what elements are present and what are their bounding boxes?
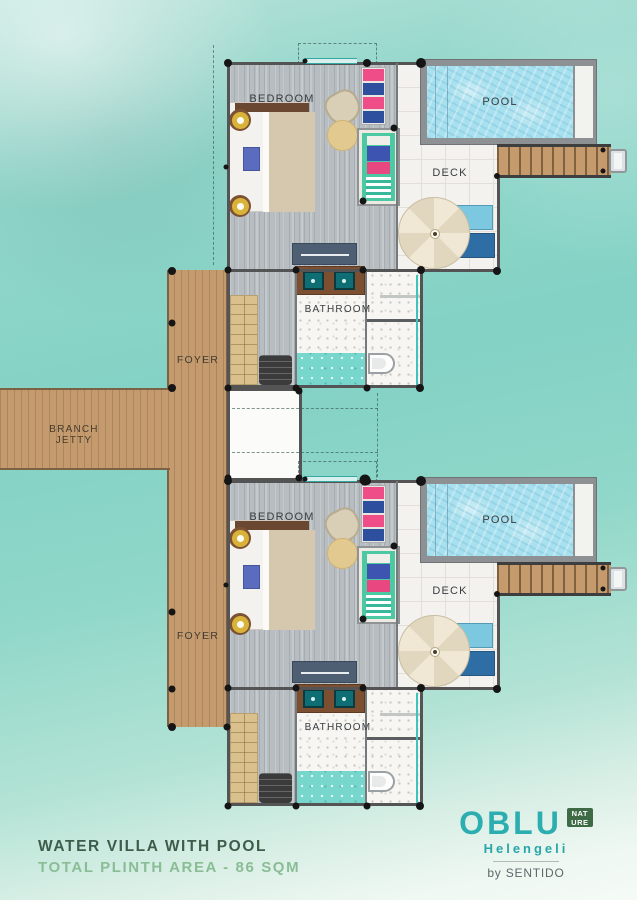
cushion [363,69,384,81]
window-strip [305,476,357,482]
pool-step-line [447,484,448,556]
daybed-towel [366,595,391,616]
pile-dot [224,724,231,731]
window-seat [361,67,386,125]
pile-dot [360,267,367,274]
deck-label: DECK [415,167,485,179]
foyer-label: FOYER [168,630,228,642]
wall-bottom [227,385,423,388]
plan-title: WATER VILLA WITH POOL [38,838,300,856]
pool-step-line [435,484,436,556]
plan-subtitle: TOTAL PLINTH AREA - 86 SQM [38,859,300,876]
bedside-lamp [232,198,249,215]
pile-dot [416,476,426,486]
pile-dot [391,543,398,550]
wall-bath-2 [365,689,367,805]
pile-dot [493,267,501,275]
pool: POOL [420,59,597,145]
bed-pillow [243,147,260,171]
nature-badge-line2: URE [567,819,593,828]
bedside-lamp [232,616,249,633]
pile-dot [224,477,232,485]
pool-side-ledge [575,66,593,138]
round-rug [327,120,358,151]
wall-bath-2 [365,271,367,387]
shower-divider [366,319,422,322]
pool-step-line [447,66,448,138]
wall-bedroom-deck [396,63,398,269]
pile-dot [296,475,303,482]
pile-dot [225,385,232,392]
pile-dot [494,591,500,597]
pile-dot [363,477,371,485]
bedside-lamp [232,112,249,129]
pile-dot [225,685,232,692]
brand-block: OBLU NAT URE Helengeli by SENTIDO [444,808,608,880]
wall-bath-right [420,271,423,388]
footer-title-block: WATER VILLA WITH POOL TOTAL PLINTH AREA … [38,838,300,876]
sink [303,271,324,290]
luggage-bench [259,355,292,385]
cushion [363,487,384,499]
daybed-pillow [367,162,390,174]
pile-dot [360,685,367,692]
wall-bath-right [420,689,423,806]
pile-dot [417,684,425,692]
daybed-pillow [367,146,390,161]
pile-dot [601,169,606,174]
pool-water: POOL [427,66,573,138]
pile-dot [168,267,176,275]
brand-property: Helengeli [444,841,608,856]
pile-dot [601,148,606,153]
bathroom-wet-area [297,353,365,385]
cushion [363,529,384,541]
bed-pillow [243,565,260,589]
cushion [363,83,384,95]
roof-dashed-line [232,452,378,453]
pile-dot [360,616,367,623]
window-seat [361,485,386,543]
bathroom-label: BATHROOM [300,722,376,733]
shower-glass [416,275,418,385]
pile-dot [364,803,371,810]
round-rug [327,538,358,569]
console-table [292,661,357,683]
roof-dashed-line [232,408,378,409]
pile-dot [224,59,232,67]
toilet [368,771,395,792]
luggage-bench [259,773,292,803]
window-strip [305,58,357,64]
pile-dot [293,267,300,274]
pile-dot [364,385,371,392]
daybed [357,128,400,206]
pile-dot [225,267,232,274]
swim-ladder [609,567,627,591]
pile-dot [416,802,424,810]
pile-dot [296,388,303,395]
pile-dot [303,477,308,482]
parasol-umbrella [398,197,470,269]
bedroom-label: BEDROOM [246,511,318,523]
daybed-pillow [367,580,390,592]
shower-divider [366,737,422,740]
branch-jetty-label-line1: BRANCH [28,424,120,435]
parasol-umbrella [398,615,470,687]
pile-dot [363,59,371,67]
nature-badge: NAT URE [567,808,593,827]
pile-dot [303,59,308,64]
daybed-pillow [367,136,390,145]
pool-water: POOL [427,484,573,556]
deck-label: DECK [415,585,485,597]
cushion [363,97,384,109]
pile-dot [225,803,232,810]
pool: POOL [420,477,597,563]
villa-unit-2: POOL [0,461,637,808]
bed-blanket [263,530,315,630]
pile-dot [224,583,229,588]
wall-bath-1 [295,271,297,387]
bathroom-wet-area [297,771,365,803]
pool-side-ledge [575,484,593,556]
wall-deck-right [497,593,500,690]
swim-ladder [609,149,627,173]
wall-bedroom-deck [396,481,398,687]
wall-left [227,480,230,806]
branch-jetty-label: BRANCH JETTY [28,424,120,446]
pile-dot [391,125,398,132]
pile-dot [293,685,300,692]
water-steps [497,144,611,178]
pile-dot [293,803,300,810]
shower-glass [416,693,418,803]
pool-label: POOL [482,514,517,526]
cushion [363,501,384,513]
brand-divider [493,861,559,862]
foyer-label: FOYER [168,354,228,366]
wall-deck-right [497,175,500,272]
pile-dot [168,384,176,392]
brand-wordmark: OBLU [459,808,562,838]
branch-jetty-label-line2: JETTY [28,435,120,446]
pile-dot [601,587,606,592]
pool-label: POOL [482,96,517,108]
pile-dot [416,58,426,68]
pile-dot [224,165,229,170]
daybed-towel [366,177,391,198]
daybed-pillow [367,564,390,579]
sink [303,689,324,708]
wall-bottom [227,803,423,806]
cushion [363,515,384,527]
pile-dot [493,685,501,693]
sink [334,271,355,290]
pile-dot [169,686,176,693]
pile-dot [169,320,176,327]
wardrobe [230,713,258,803]
bed-blanket [263,112,315,212]
wall-left [227,62,230,388]
bedroom-label: BEDROOM [246,93,318,105]
water-steps [497,562,611,596]
pile-dot [494,173,500,179]
pile-dot [168,723,176,731]
sink [334,689,355,708]
daybed-pillow [367,554,390,563]
water-villa-floor-plan: BRANCH JETTY POOL [0,0,637,900]
pile-dot [169,609,176,616]
pile-dot [417,266,425,274]
pile-dot [601,566,606,571]
bathroom-label: BATHROOM [300,304,376,315]
daybed [357,546,400,624]
cushion [363,111,384,123]
brand-byline: by SENTIDO [444,866,608,880]
bedside-lamp [232,530,249,547]
villa-unit-1: POOL [0,43,637,390]
wall-bath-1 [295,689,297,805]
pile-dot [416,384,424,392]
wardrobe [230,295,258,385]
pool-step-line [435,66,436,138]
pile-dot [360,198,367,205]
toilet [368,353,395,374]
console-table [292,243,357,265]
